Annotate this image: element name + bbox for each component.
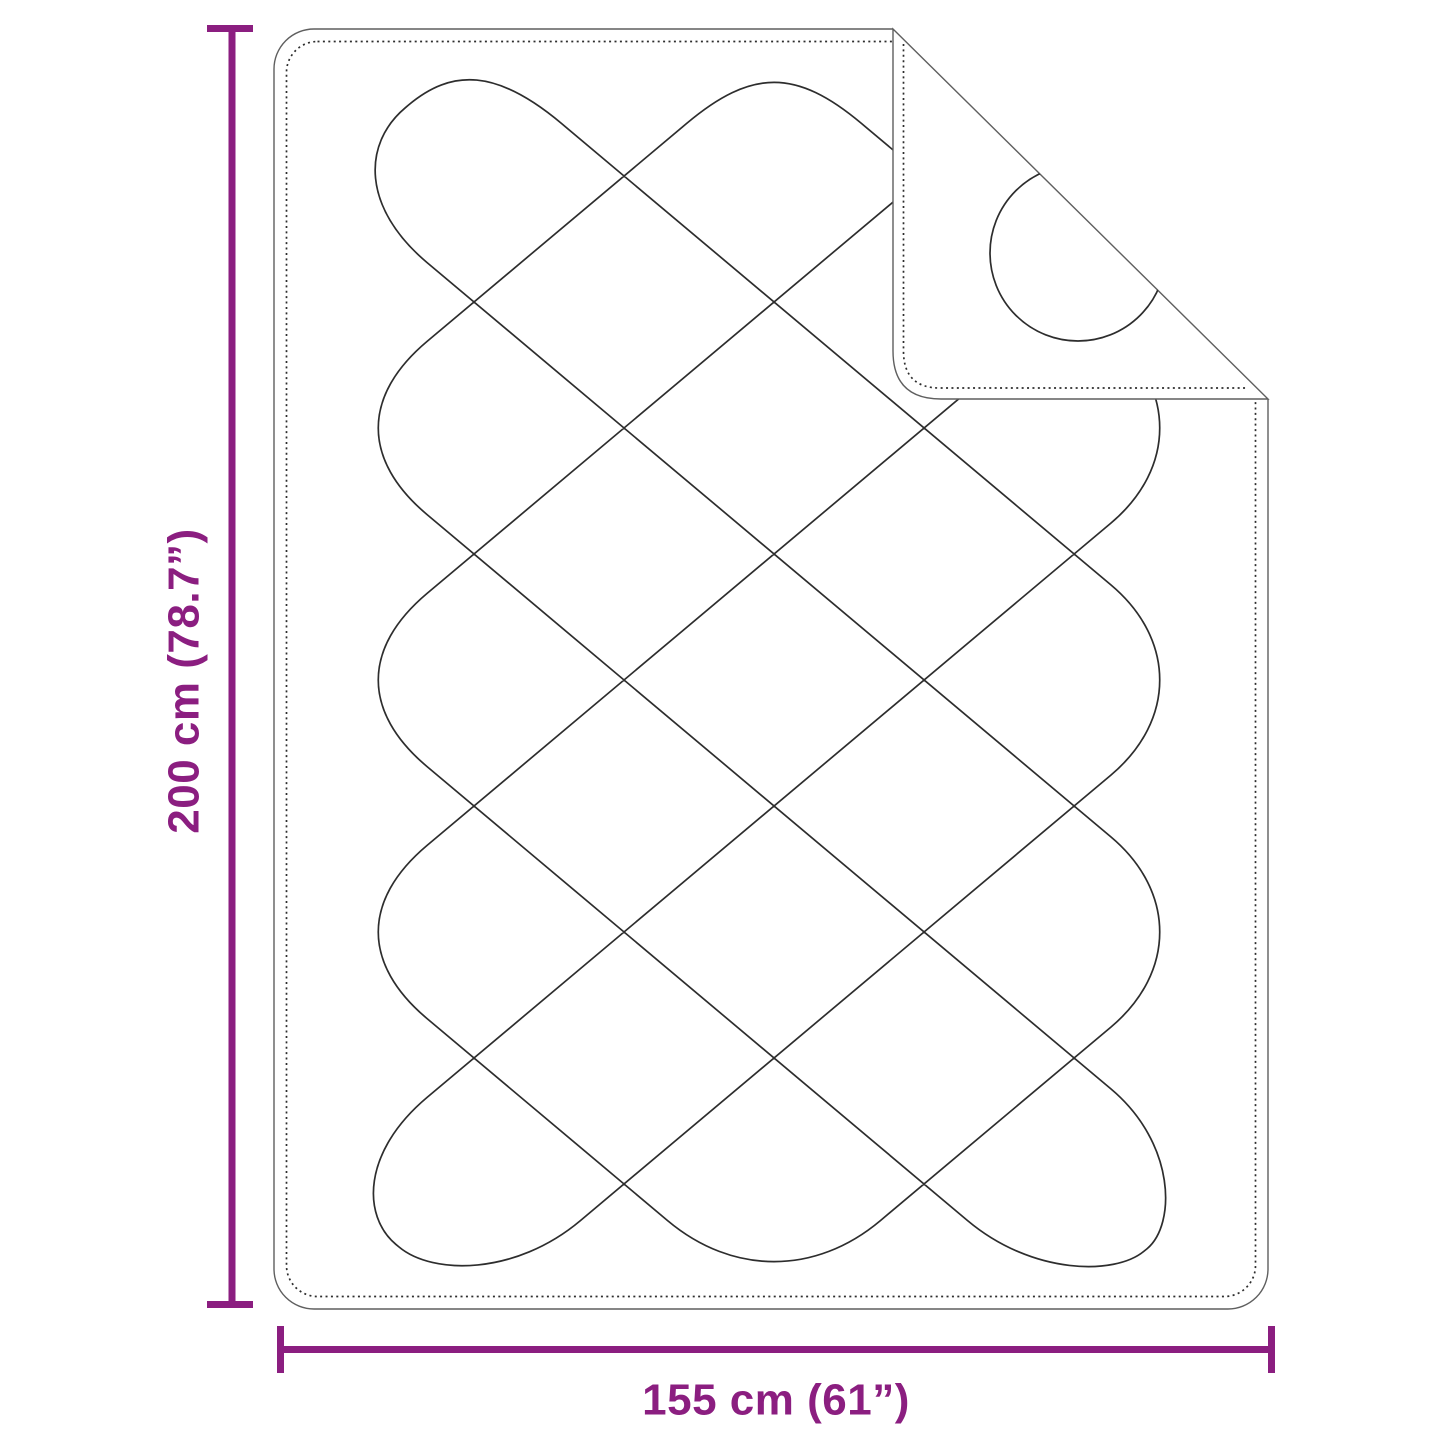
blanket	[274, 29, 1268, 1309]
height-dimension: 200 cm (78.7”)	[160, 25, 254, 1308]
width-dimension: 155 cm (61”)	[277, 1326, 1275, 1425]
width-dimension-left-cap	[277, 1326, 284, 1373]
height-dimension-label: 200 cm (78.7”)	[160, 528, 209, 833]
height-dimension-line	[229, 29, 236, 1308]
height-dimension-bottom-cap	[207, 1301, 253, 1308]
diagram-canvas: 200 cm (78.7”) 155 cm (61”)	[0, 0, 1445, 1445]
folded-corner	[893, 29, 1268, 399]
product-dimension-diagram: 200 cm (78.7”) 155 cm (61”)	[0, 0, 1445, 1445]
blanket-outline	[274, 29, 1268, 1309]
height-dimension-top-cap	[207, 25, 253, 32]
width-dimension-label: 155 cm (61”)	[642, 1376, 910, 1425]
width-dimension-right-cap	[1268, 1326, 1275, 1373]
folded-corner-flap	[893, 29, 1268, 399]
width-dimension-line	[277, 1346, 1275, 1353]
